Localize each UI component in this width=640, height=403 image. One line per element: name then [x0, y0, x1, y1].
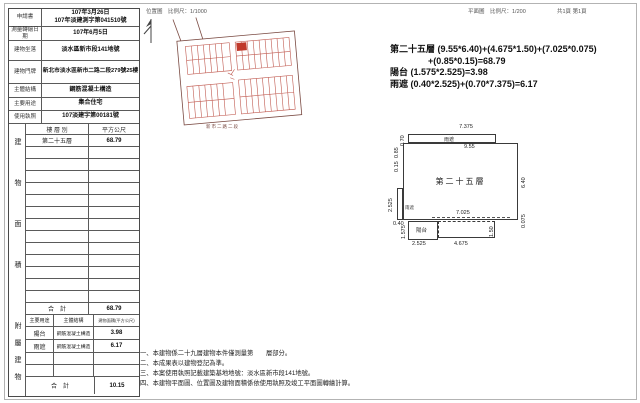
table-row: 申請書 107年3月26日 107年淡建測字第041510號: [9, 9, 139, 27]
accessory-area: 3.98: [94, 327, 139, 339]
empty-row: [26, 171, 139, 183]
col-header-area: 平方公尺: [89, 124, 139, 134]
canopy-label: 雨遮: [444, 136, 454, 143]
accessory-use: 雨遮: [26, 340, 54, 352]
application-number: 107年淡建測字第041510號: [54, 18, 126, 26]
row-value: 鋼筋混凝土構造: [42, 84, 139, 97]
floor-area-rows: 樓 層 別 平方公尺 第二十五層 68.79: [26, 124, 139, 315]
floor-row: 第二十五層 68.79: [26, 135, 139, 147]
row-value: 107年3月26日 107年淡建測字第041510號: [42, 9, 139, 26]
accessory-area: 6.17: [94, 340, 139, 352]
floor-area-section: 建物面積 樓 層 別 平方公尺 第二十五層 68.79: [9, 124, 139, 315]
empty-row: [26, 159, 139, 171]
note-line: 四、本建物平面圖、位置圖及建物面積係依使用執照及竣工平面圖轉繪計算。: [140, 379, 364, 389]
formula-line: 陽台 (1.575*2.525)=3.98: [390, 67, 635, 79]
accessory-row: 陽台 鋼筋混凝土構造 3.98: [26, 327, 139, 340]
bottom-strip-line: [432, 217, 510, 218]
section-label: 建物面積: [12, 138, 22, 302]
area-calculations: 第二十五層 (9.55*6.40)+(4.675*1.50)+(7.025*0.…: [390, 44, 635, 90]
row-value: 107淡建字第00181號: [42, 111, 139, 123]
floor-area-value: 68.79: [89, 135, 139, 146]
dim-left-canopy-h: 2.525: [388, 198, 394, 212]
floor-plan: 7.375 雨遮 0.70 9.55 0.85 0.15 第二十五層 6.40 …: [392, 126, 542, 251]
row-value: 107年6月5日: [42, 27, 139, 40]
col-header-floor: 樓 層 別: [26, 124, 89, 134]
table-row: 測量轉繪日期 107年6月5日: [9, 27, 139, 41]
empty-row: [26, 195, 139, 207]
street-label: 新市二路二段: [206, 124, 239, 130]
empty-row: [26, 291, 139, 303]
dim-bottom-strip: 7.025: [456, 210, 470, 216]
note-line: 二、本成果表以建物登記為準。: [140, 359, 364, 369]
total-area: 68.79: [89, 303, 139, 314]
empty-row: [26, 353, 139, 365]
col-header-use: 主要用途: [26, 315, 54, 326]
table-row: 建物坐落 淡水區新市段141地號: [9, 41, 139, 61]
floor-total-row: 合 計 68.79: [26, 303, 139, 315]
empty-row: [26, 267, 139, 279]
floor-plan-title: 平面圖 比例尺：1/200: [468, 7, 526, 15]
note-line: 三、本案使用執照記載建築基地地號：淡水區新市段141地號。: [140, 369, 364, 379]
balcony-label: 陽台: [416, 226, 427, 234]
col-header-area: 建物面積(平方公尺): [94, 315, 139, 326]
page-info: 共1頁 第1頁: [557, 7, 587, 15]
table-row: 建物門牌 新北市淡水區新市二路二段279號25樓: [9, 61, 139, 84]
note-line: 一、本建物係二十九層建物本件僅測量第 層部分。: [140, 349, 364, 359]
row-value: 新北市淡水區新市二路二段279號25樓: [42, 61, 139, 83]
table-row: 主體結構 鋼筋混凝土構造: [9, 84, 139, 98]
accessory-structure: 鋼筋混凝土構造: [54, 327, 94, 339]
empty-row: [26, 365, 139, 377]
room-label: 第二十五層: [403, 143, 518, 220]
section-label: 附屬建物: [12, 322, 22, 390]
empty-row: [26, 255, 139, 267]
empty-row: [26, 231, 139, 243]
dim-ext-w: 4.675: [454, 241, 468, 247]
row-label: 主要用途: [9, 98, 42, 110]
survey-result-sheet: 位置圖 比例尺：1/1000 平面圖 比例尺：1/200 共1頁 第1頁 申請書…: [0, 0, 640, 403]
dim-ext-h: 1.50: [489, 226, 495, 237]
accessory-row: 雨遮 鋼筋混凝土構造 6.17: [26, 340, 139, 353]
accessory-total-row: 合 計 10.15: [26, 377, 139, 394]
canopy-label: 雨遮: [405, 205, 414, 211]
empty-row: [26, 147, 139, 159]
formula-line: +(0.85*0.15)=68.79: [390, 56, 635, 68]
accessory-section: 附屬建物 主要用途 主體結構 建物面積(平方公尺) 陽台 鋼筋混凝土構造 3.9…: [9, 315, 139, 396]
dim-notch-h: 0.85: [394, 147, 400, 158]
floor-name: 第二十五層: [26, 135, 89, 146]
left-canopy: [397, 188, 403, 220]
dim-balcony-w: 2.525: [412, 241, 426, 247]
dim-canopy-length: 7.375: [422, 124, 510, 130]
row-label: 主體結構: [9, 84, 42, 97]
dim-main-height: 6.40: [521, 177, 527, 188]
empty-row: [26, 207, 139, 219]
subject-building-highlight: [236, 42, 247, 51]
row-label: 測量轉繪日期: [9, 27, 42, 40]
floor-header-row: 樓 層 別 平方公尺: [26, 124, 139, 135]
total-label: 合 計: [26, 303, 89, 314]
table-row: 主要用途 集合住宅: [9, 98, 139, 111]
building-info-table: 申請書 107年3月26日 107年淡建測字第041510號 測量轉繪日期 10…: [8, 8, 140, 397]
section-label-strip: 附屬建物: [9, 315, 26, 396]
empty-row: [26, 279, 139, 291]
formula-line: 雨遮 (0.40*2.525)+(0.70*7.375)=6.17: [390, 79, 635, 91]
table-row: 使用執照 107淡建字第00181號: [9, 111, 139, 124]
extension-outline: [438, 221, 495, 238]
empty-row: [26, 219, 139, 231]
row-label: 申請書: [9, 9, 42, 26]
dim-notch-w: 0.15: [394, 161, 400, 172]
empty-row: [26, 183, 139, 195]
row-label: 建物坐落: [9, 41, 42, 60]
notes-block: 一、本建物係二十九層建物本件僅測量第 層部分。 二、本成果表以建物登記為準。 三…: [140, 349, 364, 389]
accessory-use: 陽台: [26, 327, 54, 339]
section-label-strip: 建物面積: [9, 124, 26, 315]
row-label: 使用執照: [9, 111, 42, 123]
location-map: [142, 13, 304, 131]
total-label: 合 計: [26, 377, 95, 394]
accessory-rows: 主要用途 主體結構 建物面積(平方公尺) 陽台 鋼筋混凝土構造 3.98 雨遮 …: [26, 315, 139, 396]
total-area: 10.15: [95, 377, 139, 394]
formula-line: 第二十五層 (9.55*6.40)+(4.675*1.50)+(7.025*0.…: [390, 44, 635, 56]
dim-bottom-strip-depth: 0.075: [521, 214, 527, 228]
row-label: 建物門牌: [9, 61, 42, 83]
dim-balcony-h: 1.575: [401, 225, 407, 239]
col-header-structure: 主體結構: [54, 315, 94, 326]
accessory-header-row: 主要用途 主體結構 建物面積(平方公尺): [26, 315, 139, 327]
row-value: 淡水區新市段141地號: [42, 41, 139, 60]
empty-row: [26, 243, 139, 255]
row-value: 集合住宅: [42, 98, 139, 110]
application-date: 107年3月26日: [71, 10, 109, 18]
accessory-structure: 鋼筋混凝土構造: [54, 340, 94, 352]
north-arrow-icon: [144, 19, 151, 43]
